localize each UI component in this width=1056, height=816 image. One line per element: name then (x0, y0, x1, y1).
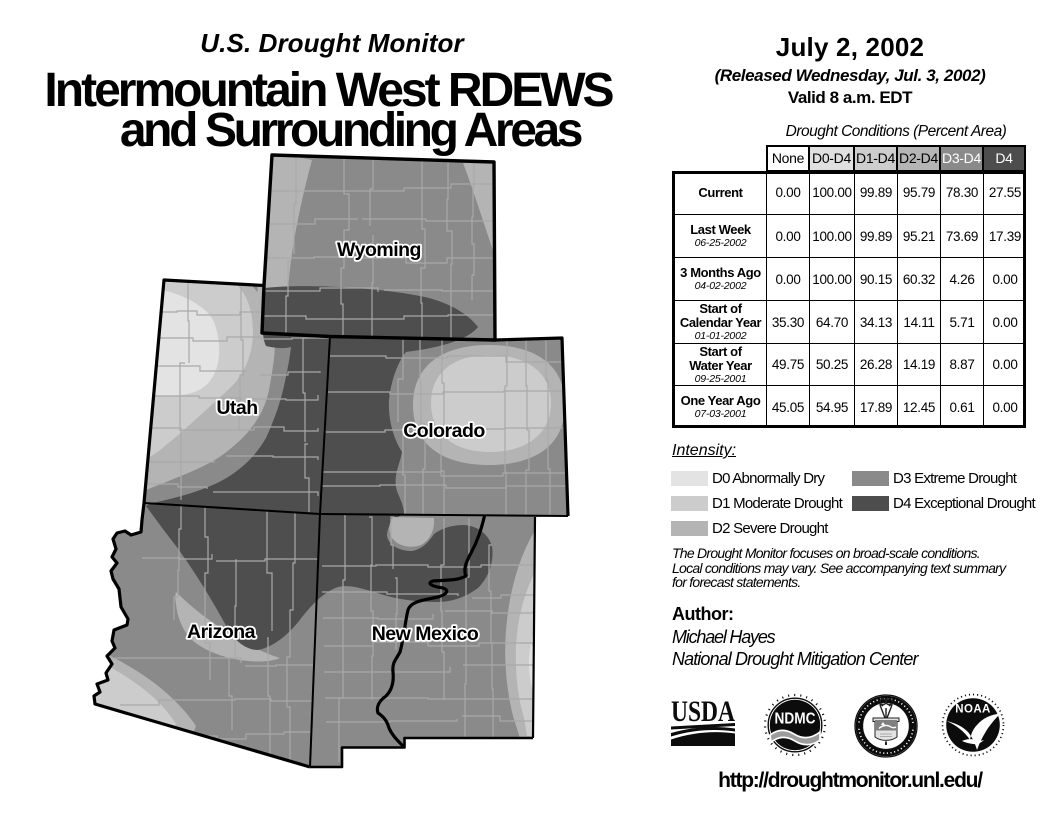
svg-text:Colorado: Colorado (403, 420, 485, 442)
svg-text:Wyoming: Wyoming (337, 239, 421, 261)
svg-text:New Mexico: New Mexico (372, 623, 479, 645)
svg-text:USDA: USDA (671, 695, 735, 728)
svg-text:Utah: Utah (216, 397, 257, 419)
svg-text:NDMC: NDMC (775, 711, 816, 728)
svg-text:Arizona: Arizona (187, 621, 256, 643)
svg-text:NOAA: NOAA (955, 704, 990, 716)
